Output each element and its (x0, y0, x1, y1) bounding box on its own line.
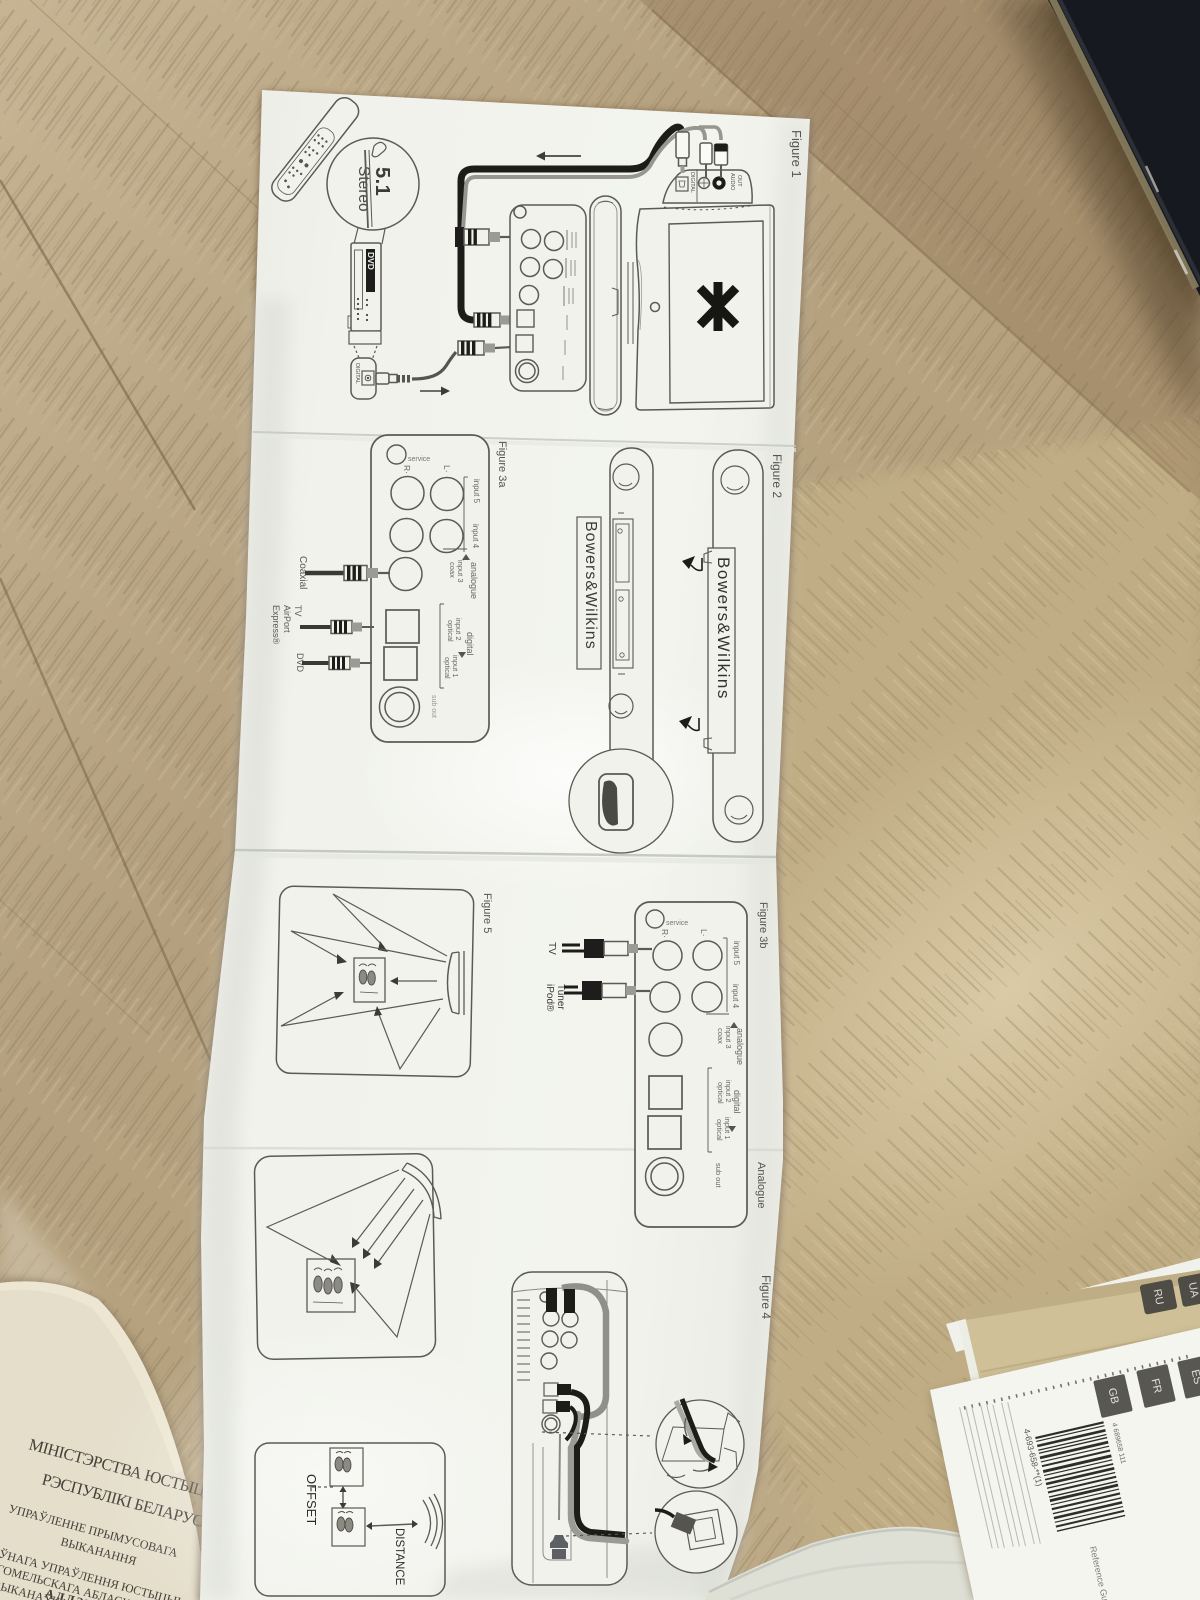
svg-text:L·: L· (442, 465, 452, 473)
svg-text:optical: optical (715, 1119, 724, 1141)
svg-text:service: service (408, 456, 430, 463)
svg-text:input 5: input 5 (472, 479, 481, 504)
svg-text:DIGITAL: DIGITAL (354, 363, 360, 384)
svg-text:DVD: DVD (366, 252, 376, 270)
svg-text:AUDIO: AUDIO (729, 173, 735, 191)
svg-text:Analogue: Analogue (755, 1162, 767, 1209)
svg-text:service: service (666, 920, 688, 927)
svg-text:TV: TV (546, 942, 557, 955)
svg-text:Express®: Express® (271, 605, 281, 645)
svg-text:input 4: input 4 (731, 984, 740, 1009)
svg-text:OUT: OUT (736, 175, 742, 187)
svg-text:AirPort: AirPort (282, 605, 292, 633)
svg-text:analogue: analogue (735, 1028, 745, 1065)
svg-text:optical: optical (443, 657, 452, 679)
svg-text:coax: coax (716, 1028, 725, 1044)
svg-text:DISTANCE: DISTANCE (393, 1528, 405, 1586)
svg-text:TV: TV (293, 605, 303, 617)
svg-text:DIGITAL: DIGITAL (689, 172, 695, 193)
svg-text:Bowers&Wilkins: Bowers&Wilkins (582, 521, 599, 650)
svg-text:L·: L· (699, 929, 709, 937)
svg-text:analogue: analogue (469, 562, 479, 599)
svg-text:OFFSET: OFFSET (304, 1474, 319, 1525)
svg-text:sub out: sub out (714, 1163, 723, 1189)
svg-text:input 4: input 4 (471, 524, 480, 549)
svg-text:Figure 4: Figure 4 (759, 1275, 773, 1319)
svg-text:Figure 2: Figure 2 (770, 454, 784, 498)
svg-text:input 5: input 5 (732, 941, 741, 966)
svg-text:sub out: sub out (430, 695, 437, 718)
svg-text:5.1: 5.1 (371, 167, 393, 196)
svg-text:Bowers&Wilkins: Bowers&Wilkins (714, 557, 733, 700)
svg-text:R·: R· (402, 465, 412, 474)
svg-text:Figure 3b: Figure 3b (757, 902, 769, 948)
svg-text:optical: optical (446, 620, 455, 642)
svg-text:optical: optical (716, 1082, 725, 1104)
svg-text:coax: coax (448, 562, 457, 578)
svg-text:R·: R· (660, 929, 670, 938)
svg-text:digital: digital (465, 632, 475, 656)
svg-text:iPod®: iPod® (544, 984, 555, 1012)
svg-text:Figure 5: Figure 5 (481, 893, 493, 933)
svg-text:Figure 3a: Figure 3a (496, 441, 508, 488)
svg-text:Figure 1: Figure 1 (789, 130, 804, 178)
